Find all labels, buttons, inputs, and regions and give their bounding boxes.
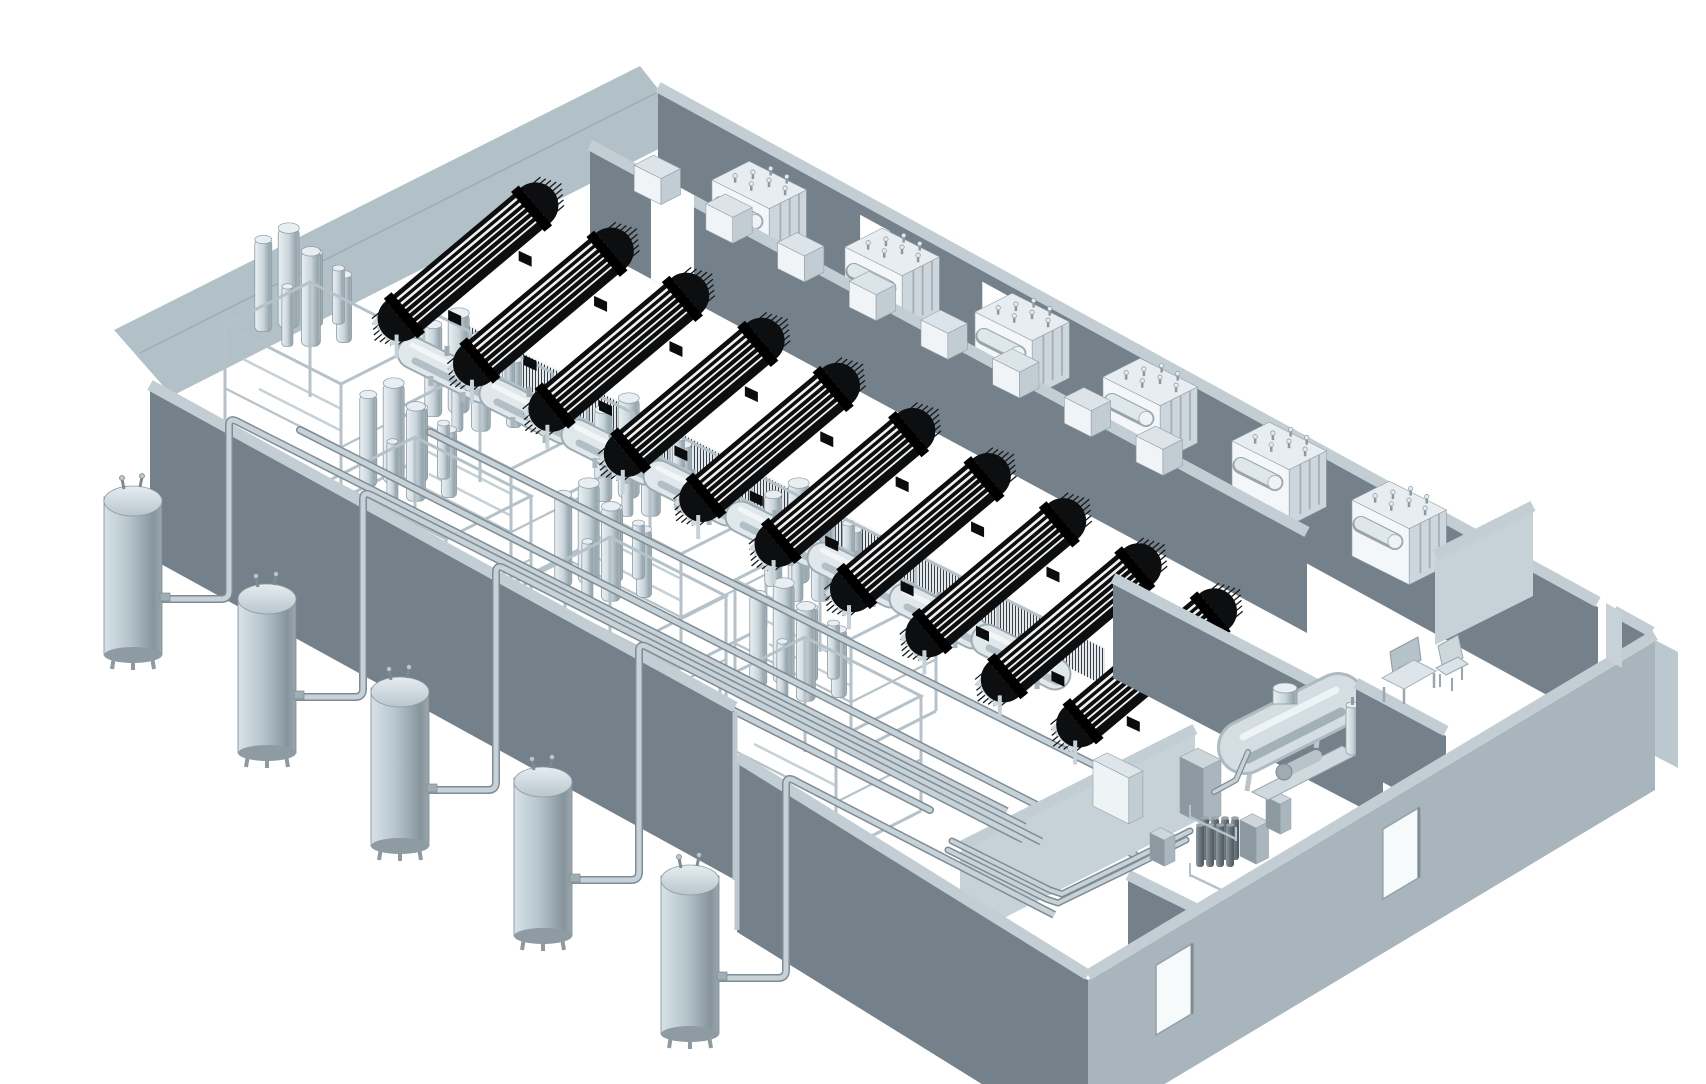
electrical-cabinet [1150, 828, 1175, 867]
control-cabinet [1180, 748, 1221, 825]
plant-3d-viewport [0, 0, 1706, 1084]
electrical-cabinet [1240, 814, 1268, 864]
operator-workstation [1382, 635, 1468, 704]
plant-3d-rendering [0, 0, 1706, 1084]
desk [1382, 660, 1436, 689]
